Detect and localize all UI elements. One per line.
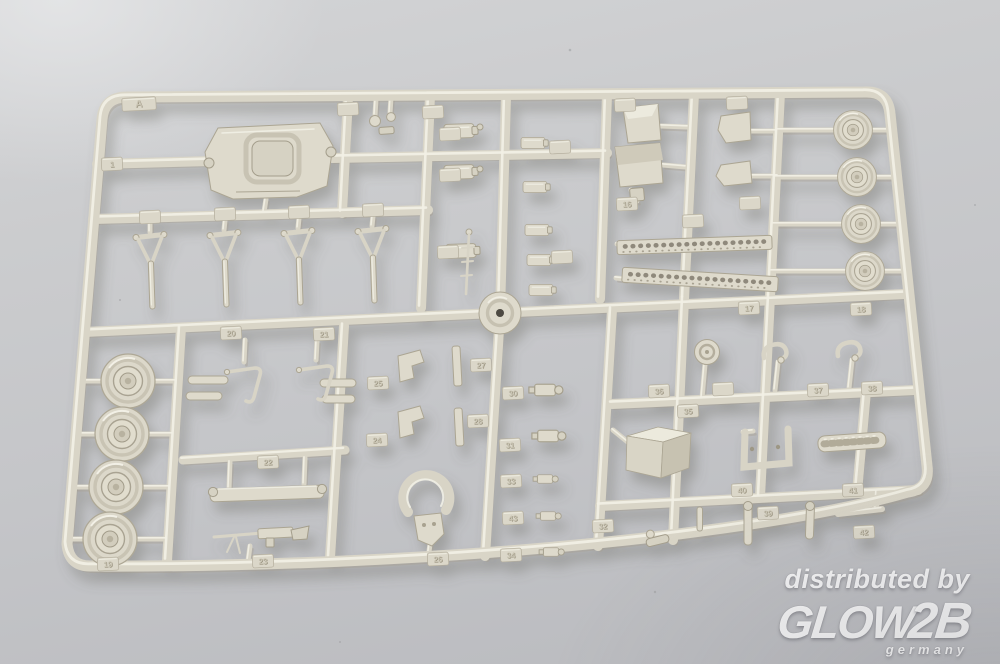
- part-number-tag: [549, 140, 571, 154]
- svg-text:32: 32: [598, 522, 608, 531]
- brand-suffix-text: 2B: [906, 592, 973, 649]
- part-stowage-box: [626, 427, 691, 478]
- part-number-tag: 2020: [220, 326, 242, 340]
- part-number-tag: [739, 196, 761, 210]
- part-number-tag: 2828: [467, 414, 489, 428]
- part-number-tag: 3434: [500, 548, 522, 562]
- part-number-tag: 1717: [738, 301, 760, 315]
- part-step-brackets: [398, 346, 464, 446]
- part-small-cluster: [370, 113, 396, 135]
- part-number-tag: 3838: [861, 381, 883, 395]
- part-antenna: [461, 229, 474, 294]
- svg-text:41: 41: [848, 486, 858, 495]
- watermark-tagline: distributed by: [778, 566, 970, 593]
- part-number-tag: [337, 102, 359, 116]
- svg-text:28: 28: [473, 417, 483, 426]
- svg-text:25: 25: [373, 379, 383, 388]
- svg-text:16: 16: [622, 200, 632, 209]
- part-number-tag: 4040: [731, 483, 753, 497]
- part-number-tag: 3232: [592, 519, 614, 533]
- part-number-tag: [682, 214, 704, 228]
- part-number-tag: 4242: [853, 525, 875, 539]
- part-perforated-strips: [617, 235, 779, 291]
- svg-text:43: 43: [508, 514, 518, 523]
- part-track-link: [817, 432, 886, 453]
- svg-text:21: 21: [319, 330, 329, 339]
- part-number-tag: 3535: [677, 404, 699, 418]
- part-number-tag: 2626: [427, 552, 449, 566]
- part-roadwheels-right: [834, 111, 885, 291]
- svg-text:18: 18: [856, 305, 866, 314]
- svg-text:39: 39: [763, 509, 773, 518]
- svg-text:22: 22: [263, 458, 273, 467]
- part-number-tag: [551, 250, 573, 264]
- svg-text:36: 36: [654, 387, 664, 396]
- part-number-tag: 2424: [366, 433, 388, 447]
- part-number-tag: [726, 96, 748, 110]
- part-number-tag: 2121: [313, 327, 335, 341]
- part-number-tag: AA: [122, 97, 157, 112]
- part-number-tag: 11: [101, 157, 123, 171]
- model-kit-sprue-photo: AA11161617171818202021212222191923232525…: [0, 0, 1000, 664]
- part-turret-roof: [204, 123, 336, 199]
- svg-text:23: 23: [258, 557, 268, 566]
- svg-text:A: A: [135, 99, 143, 110]
- watermark-brand-logo: GLOW2B: [775, 595, 973, 646]
- part-number-tag: 3939: [757, 506, 779, 520]
- part-number-tag: 1919: [97, 557, 119, 571]
- part-beam: [208, 484, 326, 502]
- svg-text:37: 37: [813, 386, 823, 395]
- sprue-gate-hub: [479, 292, 521, 334]
- part-wedges: [615, 104, 752, 202]
- part-number-tag: [139, 210, 161, 224]
- part-number-tag: 3030: [502, 386, 524, 400]
- part-number-tag: 3131: [499, 438, 521, 452]
- part-wishbone-row: [133, 225, 392, 309]
- svg-text:17: 17: [744, 304, 754, 313]
- part-caliper-levers: [224, 366, 332, 402]
- part-number-tag: 2323: [252, 554, 274, 568]
- svg-text:38: 38: [867, 384, 877, 393]
- part-number-tag: 4141: [842, 483, 864, 497]
- part-number-tag: [712, 382, 734, 396]
- part-fittings: [529, 384, 566, 556]
- svg-text:31: 31: [505, 441, 515, 450]
- part-number-tag: 4343: [502, 511, 524, 525]
- svg-text:34: 34: [506, 551, 516, 560]
- part-horseshoe: [403, 475, 449, 546]
- part-number-tag: 3636: [648, 384, 670, 398]
- svg-text:40: 40: [737, 486, 747, 495]
- part-number-tag: 2222: [257, 455, 279, 469]
- svg-text:27: 27: [476, 361, 486, 370]
- part-number-tag: 2727: [470, 358, 492, 372]
- part-machine-gun: [214, 526, 309, 553]
- part-number-tag: [214, 207, 236, 221]
- svg-text:24: 24: [372, 436, 382, 445]
- svg-text:33: 33: [506, 477, 516, 486]
- part-number-tag: 3737: [807, 383, 829, 397]
- brand-text: GLOW: [775, 596, 916, 648]
- part-disc: [695, 340, 720, 365]
- part-hook-rods: [764, 342, 861, 363]
- part-number-tag: [288, 205, 310, 219]
- part-number-tag: [614, 98, 636, 112]
- part-number-tag: [439, 168, 461, 182]
- part-number-tag: [437, 245, 459, 259]
- sprue-frame-assembly: AA11161617171818202021212222191923232525…: [65, 90, 930, 571]
- part-number-tag: 1818: [850, 302, 872, 316]
- part-number-tag: 2525: [367, 376, 389, 390]
- part-number-tag: 1616: [616, 197, 638, 211]
- svg-text:42: 42: [859, 528, 869, 537]
- part-number-tag: [439, 127, 461, 141]
- watermark: distributed by GLOW2B germany: [778, 566, 970, 656]
- svg-text:35: 35: [683, 407, 693, 416]
- part-number-tag: [362, 203, 384, 217]
- svg-text:19: 19: [103, 560, 113, 569]
- svg-text:20: 20: [226, 329, 236, 338]
- svg-text:30: 30: [508, 389, 518, 398]
- svg-text:26: 26: [433, 555, 443, 564]
- part-roadwheels-left: [83, 354, 155, 566]
- part-number-tag: 3333: [500, 474, 522, 488]
- part-number-tag: [422, 105, 444, 119]
